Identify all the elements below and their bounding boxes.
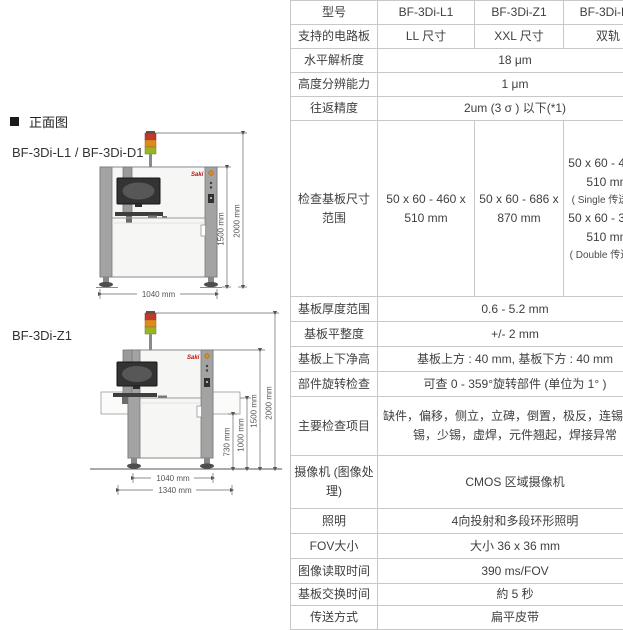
conveyor-part [162, 216, 167, 218]
power-lamp-icon [205, 354, 210, 359]
table-row: 摄像机 (图像处理) CMOS 区域摄像机 [291, 456, 623, 509]
d1-double-size: 50 x 60 - 320 x 510 mm [567, 209, 623, 247]
spec-label-lighting: 照明 [291, 509, 378, 534]
conveyor-part [158, 396, 167, 398]
spec-table: 型号 BF-3Di-L1 BF-3Di-Z1 BF-3Di-D1 支持的电路板 … [290, 0, 623, 630]
machine1-height-label: 1500 mm [217, 212, 226, 246]
table-row: 基板交换时间 約 5 秒 [291, 584, 623, 606]
machine2-feet [127, 458, 214, 469]
machine1-height-dimension: 1500 mm [217, 167, 232, 287]
d1-single-note: ( Single 传送时 ) [567, 192, 623, 209]
right-conveyor-extension [213, 392, 240, 414]
table-row: 水平解析度 18 μm [291, 49, 623, 73]
spec-label-transfer-method: 传送方式 [291, 606, 378, 630]
spec-fov-value: 大小 36 x 36 mm [378, 534, 623, 559]
spec-main-check-items-value: 缺件，偏移，侧立，立碑，倒置，极反，连锡，无锡，少锡，虚焊，元件翘起，焊接异常 [378, 397, 623, 456]
table-row: 高度分辨能力 1 μm [291, 73, 623, 97]
d1-single-size: 50 x 60 - 460 x 510 mm [567, 154, 623, 192]
machine2-total-height-label: 2000 mm [265, 386, 274, 420]
table-row: 基板厚度范围 0.6 - 5.2 mm [291, 297, 623, 322]
section-bullet-icon [10, 117, 19, 126]
machine2-conveyor-height-dimension: 730 mm [223, 414, 238, 469]
spec-label-height-resolution: 高度分辨能力 [291, 73, 378, 97]
spec-model-l1: BF-3Di-L1 [378, 1, 475, 25]
spec-label-board-clearance: 基板上下净高 [291, 347, 378, 372]
spec-board-size-d1: 50 x 60 - 460 x 510 mm ( Single 传送时 ) 50… [564, 121, 623, 297]
spec-model-z1: BF-3Di-Z1 [475, 1, 564, 25]
spec-label-board-thickness: 基板厚度范围 [291, 297, 378, 322]
spec-board-size-l1: 50 x 60 - 460 x 510 mm [378, 121, 475, 297]
spec-board-clearance-value: 基板上方 : 40 mm, 基板下方 : 40 mm [378, 347, 623, 372]
table-row: 主要检查项目 缺件，偏移，侧立，立碑，倒置，极反，连锡，无锡，少锡，虚焊，元件翘… [291, 397, 623, 456]
spec-model-d1: BF-3Di-D1 [564, 1, 623, 25]
table-row: 传送方式 扁平皮带 [291, 606, 623, 630]
machine2-conveyor-height-label: 730 mm [223, 427, 232, 456]
spec-supported-board-z1: XXL 尺寸 [475, 25, 564, 49]
spec-image-read-time-value: 390 ms/FOV [378, 559, 623, 584]
spec-label-repeat-accuracy: 往返精度 [291, 97, 378, 121]
machine2-base-width-dimension: 1040 mm [133, 473, 213, 483]
d1-double-note: ( Double 传送时 ) [567, 247, 623, 264]
spec-rotation-check-value: 可查 0 - 359°旋转部件 (单位为 1° ) [378, 372, 623, 397]
spec-label-supported-board: 支持的电路板 [291, 25, 378, 49]
door-handle-icon [197, 406, 202, 417]
spec-supported-board-d1: 双轨 [564, 25, 623, 49]
conveyor-part [148, 216, 157, 218]
spec-label-board-exchange-time: 基板交换时间 [291, 584, 378, 606]
button-icon [210, 186, 212, 188]
spec-repeat-accuracy-value: 2um (3 σ ) 以下(*1) [378, 97, 623, 121]
front-view-panel: 正面图 BF-3Di-L1 / BF-3Di-D1 Saki [0, 0, 290, 609]
table-row: 支持的电路板 LL 尺寸 XXL 尺寸 双轨 [291, 25, 623, 49]
spec-label-fov: FOV大小 [291, 534, 378, 559]
spec-board-flatness-value: +/- 2 mm [378, 322, 623, 347]
spec-transfer-method-value: 扁平皮带 [378, 606, 623, 630]
machine2-total-width-label: 1340 mm [158, 486, 192, 495]
spec-camera-value: CMOS 区域摄像机 [378, 456, 623, 509]
spec-label-board-flatness: 基板平整度 [291, 322, 378, 347]
signal-tower-icon [145, 131, 156, 167]
table-row: 图像读取时间 390 ms/FOV [291, 559, 623, 584]
machine2-front-view-diagram: Saki [60, 308, 288, 506]
machine2-base-width-label: 1040 mm [156, 474, 190, 483]
button-icon [206, 369, 208, 371]
spec-height-resolution-value: 1 μm [378, 73, 623, 97]
spec-label-horizontal-resolution: 水平解析度 [291, 49, 378, 73]
spec-lighting-value: 4向投射和多段环形照明 [378, 509, 623, 534]
table-row: 基板平整度 +/- 2 mm [291, 322, 623, 347]
machine2-total-width-dimension: 1340 mm [118, 485, 232, 495]
machine1-front-view-diagram: Saki [60, 126, 265, 306]
table-row: 型号 BF-3Di-L1 BF-3Di-Z1 BF-3Di-D1 [291, 1, 623, 25]
spec-label-model: 型号 [291, 1, 378, 25]
spec-label-main-check-items: 主要检查项目 [291, 397, 378, 456]
spec-label-camera: 摄像机 (图像处理) [291, 456, 378, 509]
machine1-body: Saki [96, 167, 222, 288]
spec-label-rotation-check: 部件旋转检查 [291, 372, 378, 397]
signal-tower-icon [145, 311, 156, 350]
table-row: 部件旋转检查 可查 0 - 359°旋转部件 (单位为 1° ) [291, 372, 623, 397]
machine1-feet [96, 277, 222, 288]
monitor-icon [117, 362, 157, 389]
machine1-width-dimension: 1040 mm [100, 289, 217, 299]
spec-horizontal-resolution-value: 18 μm [378, 49, 623, 73]
brand-logo: Saki [191, 172, 204, 178]
table-row: FOV大小 大小 36 x 36 mm [291, 534, 623, 559]
machine1-width-label: 1040 mm [142, 290, 176, 299]
power-lamp-icon [209, 171, 214, 176]
machine1-total-height-label: 2000 mm [233, 204, 242, 238]
button-icon [206, 365, 208, 367]
spec-board-thickness-value: 0.6 - 5.2 mm [378, 297, 623, 322]
spec-board-size-z1: 50 x 60 - 686 x 870 mm [475, 121, 564, 297]
button-icon [210, 182, 212, 184]
table-row: 往返精度 2um (3 σ ) 以下(*1) [291, 97, 623, 121]
spec-board-exchange-time-value: 約 5 秒 [378, 584, 623, 606]
table-row: 照明 4向投射和多段环形照明 [291, 509, 623, 534]
spec-label-board-size-range: 检查基板尺寸范围 [291, 121, 378, 297]
table-row: 检查基板尺寸范围 50 x 60 - 460 x 510 mm 50 x 60 … [291, 121, 623, 297]
brand-logo: Saki [187, 355, 200, 361]
spec-label-image-read-time: 图像读取时间 [291, 559, 378, 584]
spec-supported-board-l1: LL 尺寸 [378, 25, 475, 49]
machine2-height-label: 1500 mm [250, 394, 259, 428]
machine2-extension-height-label: 1000 mm [237, 418, 246, 452]
door-handle-icon [201, 225, 206, 236]
table-row: 基板上下净高 基板上方 : 40 mm, 基板下方 : 40 mm [291, 347, 623, 372]
monitor-icon [117, 178, 160, 207]
